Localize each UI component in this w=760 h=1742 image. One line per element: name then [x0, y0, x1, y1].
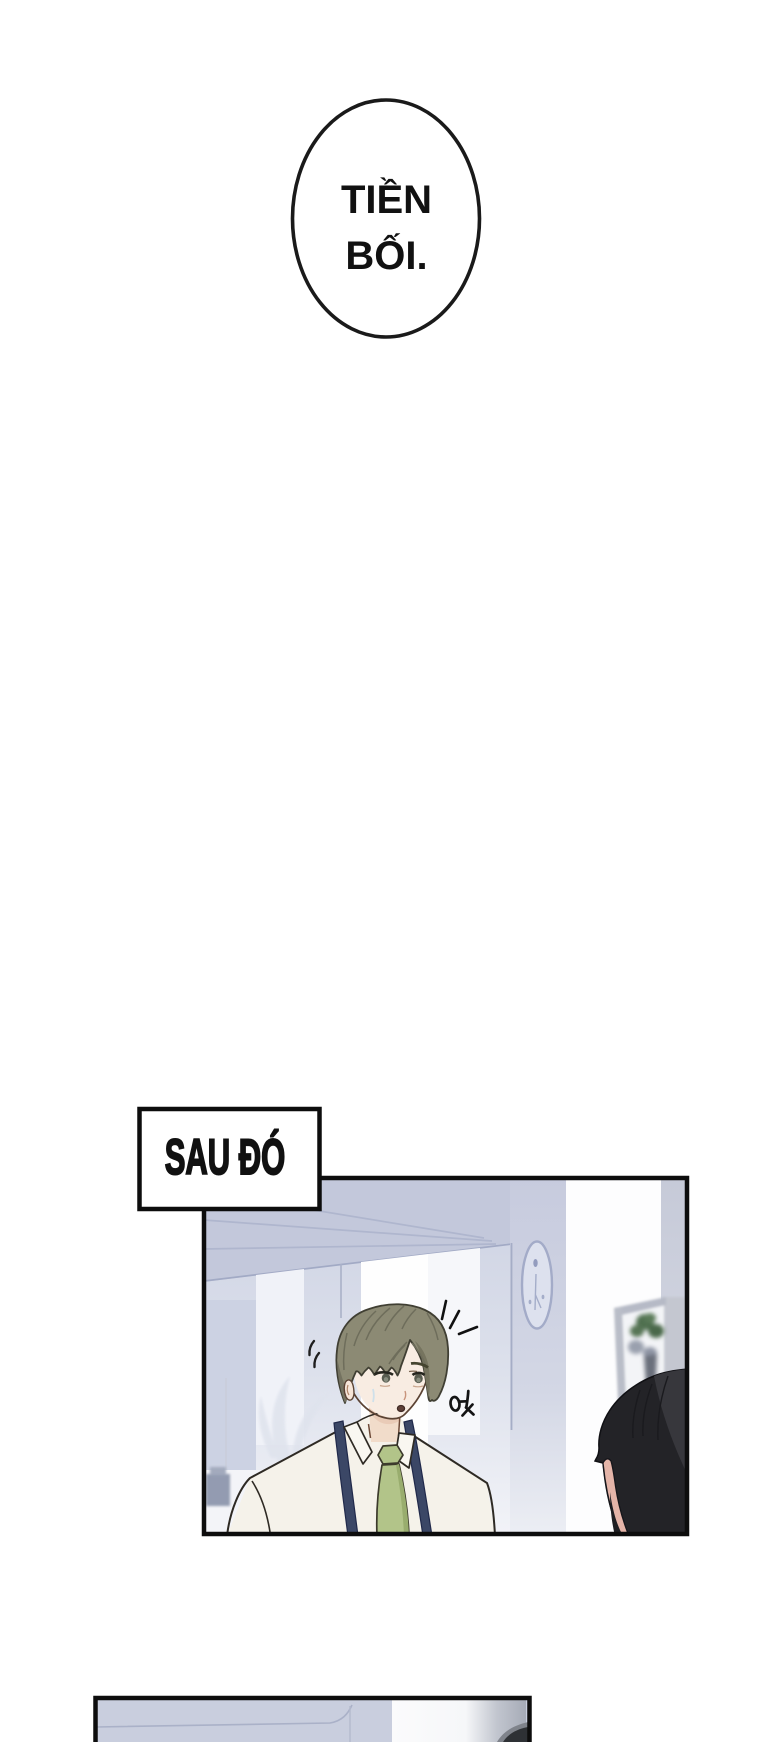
svg-text:TIỀN: TIỀN [341, 176, 432, 222]
svg-text:BỐI.: BỐI. [345, 232, 427, 278]
svg-text:SAU ĐÓ: SAU ĐÓ [165, 1127, 286, 1185]
